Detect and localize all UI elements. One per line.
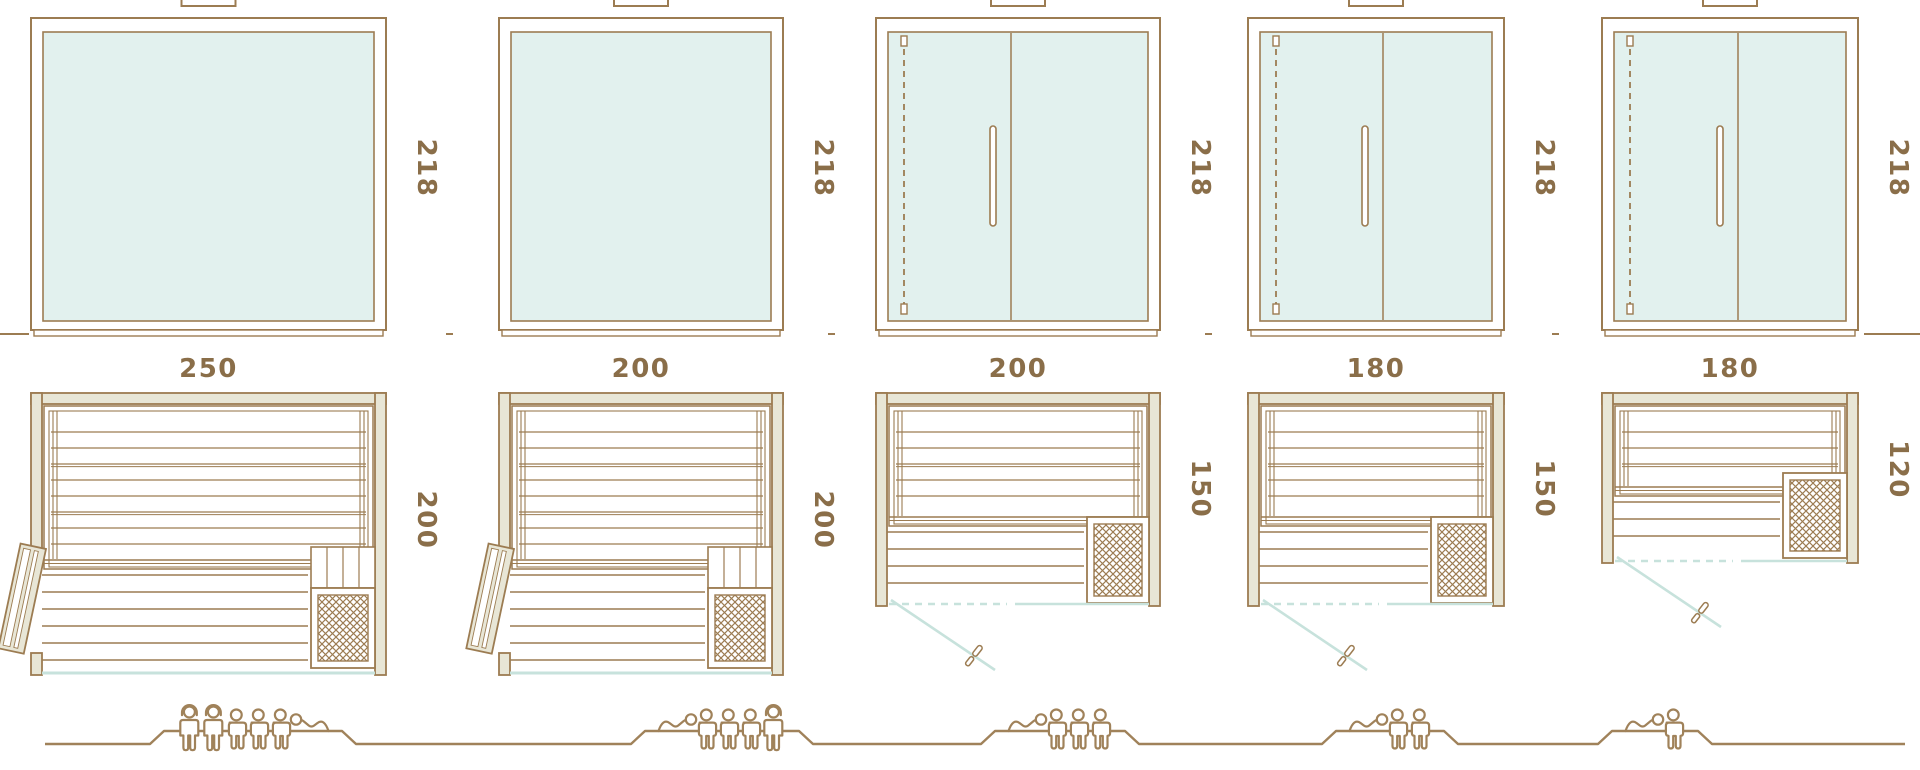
sauna-4-depth-label: 150 [1529, 459, 1559, 518]
sill [1605, 330, 1855, 336]
upper-bench [512, 406, 770, 569]
hinge-icon [901, 36, 907, 46]
sill [879, 330, 1157, 336]
heater-icon [708, 588, 772, 668]
hinge-icon [1627, 304, 1633, 314]
person-sitting-icon [1093, 710, 1110, 749]
sauna-3-width-label: 200 [989, 354, 1048, 384]
upper-bench [44, 406, 373, 569]
sauna-1-elevation: 218 [31, 0, 441, 336]
door-swing-line [1263, 600, 1367, 670]
person-lying-icon [291, 714, 329, 731]
sauna-3-depth-label: 150 [1185, 459, 1215, 518]
hinge-icon [1273, 36, 1279, 46]
glass-panel [1260, 32, 1492, 321]
person-sitting-icon [251, 710, 268, 749]
sauna-3-plan: 200150 [876, 354, 1215, 670]
upper-bench [1261, 406, 1491, 526]
door-handle-icon [964, 645, 983, 667]
roof-vent-icon [614, 0, 668, 6]
roof-vent-icon [182, 0, 236, 6]
person-sitting-icon [229, 710, 246, 749]
person-sitting-icon [699, 710, 716, 749]
diagram-canvas: 2182182182182182502002002002001501801501… [0, 0, 1920, 770]
roof-vent-icon [991, 0, 1045, 6]
sauna-3-capacity-group [1009, 710, 1111, 749]
sauna-1-height-label: 218 [411, 139, 441, 198]
door-handle-icon [1690, 602, 1709, 624]
heater-icon [1087, 517, 1149, 603]
heater-icon [1431, 517, 1493, 603]
roof-vent-icon [1703, 0, 1757, 6]
sauna-5-plan: 180120 [1602, 354, 1913, 627]
person-lying-icon [659, 714, 697, 731]
sauna-2-capacity-group [659, 705, 783, 750]
heater-icon [311, 588, 375, 668]
door-swing-line [891, 600, 995, 670]
lower-bench [887, 532, 1084, 583]
step-bench [708, 547, 772, 588]
hinge-icon [1627, 36, 1633, 46]
sauna-4-elevation: 218 [1248, 0, 1559, 336]
sauna-5-elevation: 218 [1602, 0, 1913, 336]
glass-panel [1614, 32, 1846, 321]
ground-line [45, 731, 1905, 744]
glass-panel [43, 32, 374, 321]
roof-vent-icon [1349, 0, 1403, 6]
person-sitting-icon [743, 710, 760, 749]
sauna-2-plan: 200200 [466, 354, 838, 675]
person-sitting-icon [1412, 710, 1429, 749]
sauna-2-depth-label: 200 [808, 491, 838, 550]
heater-icon [1783, 473, 1847, 558]
sauna-1-plan: 250200 [0, 354, 441, 675]
glass-panel [888, 32, 1148, 321]
door-handle-icon [990, 126, 996, 226]
sill [34, 330, 383, 336]
person-sitting-icon [1666, 710, 1683, 749]
sauna-5-capacity-group [1626, 710, 1684, 749]
door-handle-icon [1336, 645, 1355, 667]
sauna-size-comparison-diagram: 2182182182182182502002002002001501801501… [0, 0, 1920, 770]
sauna-5-width-label: 180 [1701, 354, 1760, 384]
lower-bench [42, 575, 308, 660]
person-lying-icon [1350, 714, 1388, 731]
sill [1251, 330, 1501, 336]
person-sitting-icon [273, 710, 290, 749]
timber-door-leaf [466, 544, 514, 654]
sauna-4-height-label: 218 [1529, 139, 1559, 198]
hinge-icon [1273, 304, 1279, 314]
sauna-4-plan: 180150 [1248, 354, 1559, 670]
sauna-5-height-label: 218 [1883, 139, 1913, 198]
lower-bench [1613, 502, 1780, 536]
door-handle-icon [1717, 126, 1723, 226]
timber-door-leaf [0, 544, 46, 654]
sauna-2-elevation: 218 [499, 0, 838, 336]
sauna-1-depth-label: 200 [411, 491, 441, 550]
door-swing-line [1617, 557, 1721, 627]
glass-panel [511, 32, 771, 321]
capacity-row [45, 705, 1905, 750]
sauna-4-capacity-group [1350, 710, 1430, 749]
door-handle-icon [1362, 126, 1368, 226]
sauna-3-elevation: 218 [876, 0, 1215, 336]
sill [502, 330, 780, 336]
hinge-icon [901, 304, 907, 314]
lower-bench [510, 575, 705, 660]
person-standing-icon [204, 705, 222, 750]
person-lying-icon [1626, 714, 1664, 731]
person-lying-icon [1009, 714, 1047, 731]
person-sitting-icon [721, 710, 738, 749]
person-sitting-icon [1390, 710, 1407, 749]
upper-bench [889, 406, 1147, 526]
lower-bench [1259, 532, 1428, 583]
person-sitting-icon [1049, 710, 1066, 749]
sauna-5-depth-label: 120 [1883, 440, 1913, 499]
sauna-2-height-label: 218 [808, 139, 838, 198]
sauna-1-width-label: 250 [179, 354, 238, 384]
sauna-4-width-label: 180 [1347, 354, 1406, 384]
person-sitting-icon [1071, 710, 1088, 749]
step-bench [311, 547, 375, 588]
sauna-1-capacity-group [180, 705, 328, 750]
person-standing-icon [764, 705, 782, 750]
sauna-2-width-label: 200 [612, 354, 671, 384]
person-standing-icon [180, 705, 198, 750]
sauna-3-height-label: 218 [1185, 139, 1215, 198]
